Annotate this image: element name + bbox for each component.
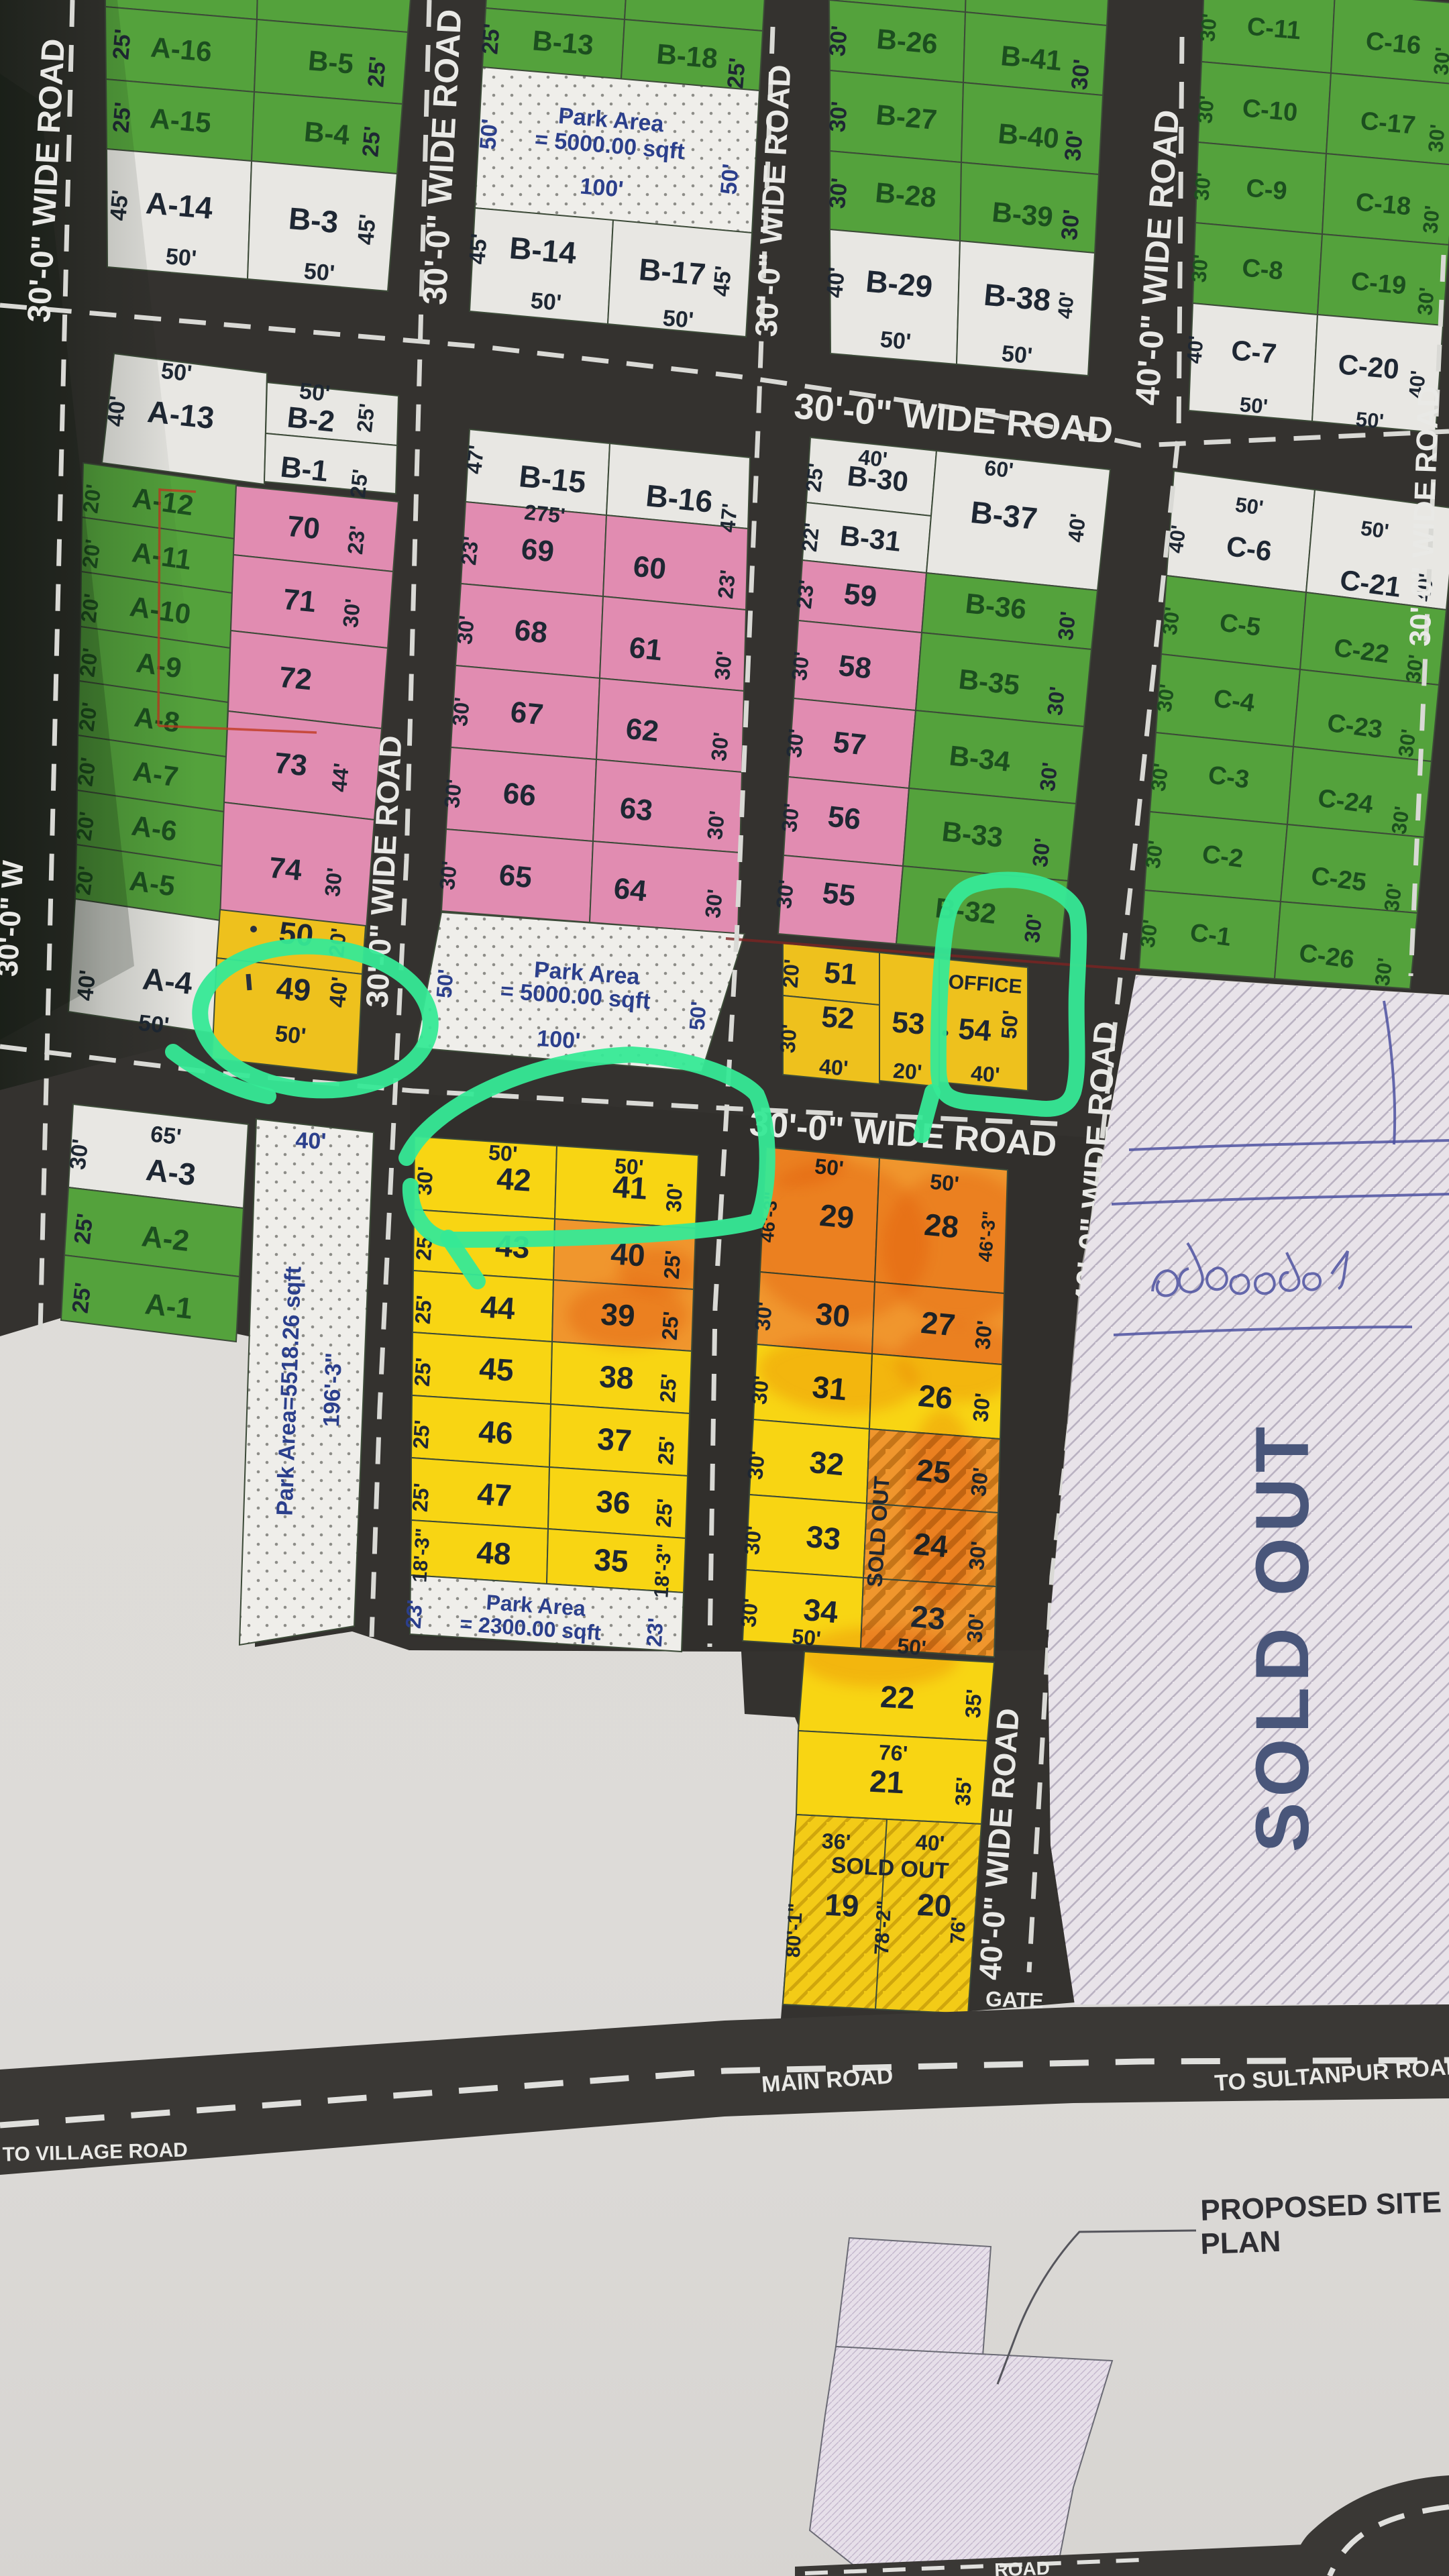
svg-text:70: 70 [286,510,322,546]
svg-text:25': 25' [352,402,379,433]
svg-text:50': 50' [879,327,912,355]
svg-text:B-37: B-37 [969,494,1039,536]
svg-text:B-38: B-38 [982,277,1052,318]
svg-text:72: 72 [278,661,314,697]
svg-text:30': 30' [1035,761,1062,792]
svg-text:275': 275' [523,500,566,528]
svg-text:30': 30' [435,860,462,892]
svg-text:ROAD: ROAD [994,2558,1050,2576]
svg-text:55: 55 [821,877,857,913]
svg-text:25': 25' [477,23,505,56]
svg-text:C-5: C-5 [1218,608,1262,642]
svg-text:19: 19 [824,1887,860,1924]
svg-text:36': 36' [821,1829,851,1854]
svg-text:51: 51 [823,956,858,991]
svg-text:30': 30' [775,1023,802,1054]
svg-text:23': 23' [792,578,818,610]
svg-text:B-4: B-4 [303,115,352,151]
svg-text:20': 20' [778,958,804,989]
svg-text:30': 30' [320,867,347,898]
svg-text:35': 35' [951,1776,976,1807]
svg-text:B-14: B-14 [508,230,578,270]
svg-text:30': 30' [65,1138,94,1171]
svg-text:25': 25' [801,462,828,493]
svg-text:B-18: B-18 [655,38,719,74]
svg-text:30': 30' [1387,805,1413,836]
svg-text:30': 30' [1187,254,1213,284]
svg-text:C-18: C-18 [1354,189,1412,221]
svg-text:74: 74 [268,851,304,888]
svg-text:47': 47' [715,502,742,534]
svg-text:47': 47' [462,444,488,476]
svg-text:C-17: C-17 [1359,107,1417,140]
svg-text:50': 50' [1355,407,1385,433]
svg-text:B-33: B-33 [941,815,1005,853]
svg-text:30': 30' [1057,208,1085,241]
svg-text:B-41: B-41 [1000,40,1063,76]
svg-text:30': 30' [1060,129,1088,162]
svg-text:B-17: B-17 [637,252,707,292]
svg-text:30': 30' [750,1301,777,1332]
svg-text:40': 40' [822,266,850,299]
svg-text:30': 30' [739,1525,766,1556]
svg-text:61: 61 [628,631,664,667]
svg-text:50': 50' [475,118,503,151]
svg-text:38: 38 [598,1358,635,1395]
svg-text:40': 40' [1063,512,1090,543]
svg-text:B-13: B-13 [531,24,595,60]
svg-text:25': 25' [409,1419,435,1450]
svg-text:SOLD OUT: SOLD OUT [1240,1421,1324,1853]
svg-text:42: 42 [496,1161,532,1197]
svg-text:44: 44 [480,1289,517,1326]
svg-text:57: 57 [832,726,868,762]
svg-text:37: 37 [596,1421,633,1458]
svg-text:50': 50' [303,258,335,286]
svg-text:100': 100' [536,1026,581,1054]
svg-text:30': 30' [962,1613,989,1644]
svg-text:80'-1": 80'-1" [782,1902,807,1958]
svg-text:40': 40' [295,1128,327,1155]
svg-text:B-5: B-5 [307,44,355,79]
svg-text:40': 40' [1054,290,1079,319]
svg-text:25': 25' [411,1295,437,1325]
svg-text:C-8: C-8 [1241,254,1285,285]
svg-text:B-16: B-16 [644,478,714,519]
svg-text:30': 30' [824,176,853,209]
svg-text:B-39: B-39 [991,196,1055,233]
svg-text:33: 33 [805,1519,843,1557]
svg-text:64: 64 [612,872,649,908]
svg-text:48: 48 [476,1534,512,1571]
svg-text:73: 73 [273,747,309,783]
svg-text:47: 47 [476,1476,513,1513]
svg-text:50': 50' [661,305,694,333]
svg-text:68: 68 [513,614,549,650]
svg-text:C-20: C-20 [1337,348,1401,385]
svg-text:C-7: C-7 [1230,334,1279,370]
svg-text:71: 71 [282,583,318,619]
svg-text:50': 50' [716,163,744,196]
svg-text:30': 30' [439,778,466,810]
svg-text:25': 25' [70,1212,99,1246]
svg-text:PLAN: PLAN [1200,2225,1281,2261]
svg-text:B-34: B-34 [948,739,1012,777]
svg-text:41: 41 [612,1169,648,1205]
svg-text:23': 23' [642,1617,668,1648]
svg-text:C-1: C-1 [1188,918,1232,952]
svg-text:25': 25' [410,1357,436,1387]
svg-text:30': 30' [1379,882,1406,913]
svg-text:25': 25' [653,1436,680,1466]
svg-text:52: 52 [820,1000,855,1035]
svg-text:65: 65 [498,859,534,895]
svg-text:25': 25' [655,1373,682,1403]
svg-text:30': 30' [1193,95,1219,125]
svg-text:50': 50' [164,244,197,272]
svg-text:34: 34 [802,1592,840,1630]
svg-text:C-16: C-16 [1364,28,1422,60]
svg-text:66: 66 [502,777,538,813]
svg-text:A-2: A-2 [140,1220,191,1258]
svg-text:C-2: C-2 [1200,840,1244,873]
svg-text:30': 30' [1028,837,1055,868]
svg-text:30': 30' [1140,839,1167,870]
svg-text:25': 25' [363,56,391,89]
svg-text:B-1: B-1 [279,451,330,488]
svg-text:50': 50' [1359,516,1390,543]
svg-text:36: 36 [595,1483,631,1520]
svg-text:B-27: B-27 [875,99,938,136]
svg-text:21: 21 [869,1764,905,1801]
svg-text:35: 35 [593,1542,629,1578]
svg-text:59: 59 [843,578,879,614]
svg-text:49: 49 [275,970,313,1008]
svg-text:56: 56 [826,800,863,837]
svg-text:40': 40' [325,975,354,1009]
svg-text:20': 20' [892,1059,923,1085]
svg-text:50': 50' [1234,492,1265,519]
svg-text:B-2: B-2 [286,401,337,439]
svg-text:30': 30' [1157,606,1184,637]
svg-text:30': 30' [452,614,479,646]
svg-text:65': 65' [149,1122,182,1150]
svg-text:23': 23' [401,1599,427,1629]
svg-text:50': 50' [274,1021,307,1050]
svg-text:22': 22' [797,521,824,553]
svg-text:32: 32 [808,1444,846,1483]
svg-text:23': 23' [713,569,740,600]
svg-text:25': 25' [722,57,751,90]
svg-text:44': 44' [327,762,354,794]
svg-text:50': 50' [1000,341,1033,369]
svg-text:76': 76' [947,1916,970,1944]
svg-text:B-40: B-40 [997,117,1061,154]
svg-text:30': 30' [706,731,733,763]
svg-text:60: 60 [632,550,668,586]
svg-text:76': 76' [878,1740,908,1766]
svg-text:B-35: B-35 [957,663,1022,700]
svg-text:B-28: B-28 [874,176,938,213]
svg-text:40': 40' [818,1055,849,1081]
svg-text:50': 50' [529,288,562,316]
svg-text:40': 40' [1182,335,1208,365]
svg-text:B-36: B-36 [964,587,1028,625]
svg-text:A-16: A-16 [150,31,213,67]
svg-text:B-31: B-31 [839,519,903,557]
svg-text:30': 30' [736,1597,763,1628]
svg-text:23': 23' [456,535,483,567]
svg-text:196'-3": 196'-3" [319,1352,347,1427]
svg-text:50': 50' [160,358,193,387]
svg-text:B-26: B-26 [875,23,939,60]
svg-text:67: 67 [509,696,545,732]
svg-text:30': 30' [1146,762,1173,793]
svg-text:30': 30' [1189,172,1216,202]
svg-text:30': 30' [1424,123,1449,154]
svg-text:C-9: C-9 [1245,174,1289,205]
svg-text:B-3: B-3 [287,201,339,239]
svg-text:A-3: A-3 [144,1152,198,1192]
svg-text:30': 30' [1370,957,1397,987]
svg-text:C-3: C-3 [1206,761,1250,794]
svg-text:78'-2": 78'-2" [871,1900,896,1955]
svg-text:30': 30' [1053,610,1080,641]
svg-text:30': 30' [824,24,853,57]
svg-text:30': 30' [1393,728,1420,759]
svg-text:25': 25' [358,125,386,158]
svg-text:30': 30' [743,1450,769,1481]
svg-text:100': 100' [579,173,625,202]
svg-text:20: 20 [916,1887,953,1924]
svg-text:30': 30' [787,650,814,682]
svg-text:B-15: B-15 [517,458,587,500]
svg-text:30': 30' [771,878,798,910]
svg-text:30': 30' [1042,685,1069,716]
svg-text:C-10: C-10 [1241,95,1299,127]
svg-text:30': 30' [1429,46,1449,76]
svg-text:53: 53 [891,1006,926,1040]
svg-text:30': 30' [1020,912,1046,944]
svg-text:30': 30' [1152,683,1179,714]
svg-text:54: 54 [957,1012,993,1047]
svg-text:30': 30' [782,727,808,759]
svg-text:25': 25' [345,468,372,499]
svg-text:46: 46 [478,1413,514,1450]
svg-text:35': 35' [961,1688,986,1719]
svg-text:40': 40' [915,1830,945,1856]
svg-text:50': 50' [1239,392,1269,419]
svg-text:A-15: A-15 [149,102,213,138]
svg-text:30': 30' [710,650,737,682]
svg-text:30': 30' [1195,13,1222,43]
svg-text:40': 40' [970,1061,1001,1087]
svg-text:A-14: A-14 [144,185,214,225]
svg-text:50': 50' [685,1000,711,1031]
svg-text:45: 45 [478,1350,515,1387]
svg-text:30': 30' [1418,205,1444,235]
svg-text:62: 62 [625,712,661,749]
svg-text:C-11: C-11 [1246,13,1302,46]
svg-text:45': 45' [708,265,737,298]
svg-text:B-30: B-30 [846,460,910,497]
svg-text:C-6: C-6 [1224,530,1273,568]
svg-text:30': 30' [702,810,729,841]
svg-text:45': 45' [464,233,492,266]
svg-text:C-19: C-19 [1350,268,1407,301]
svg-text:A-1: A-1 [144,1287,195,1326]
svg-text:30': 30' [1413,286,1439,317]
svg-text:50': 50' [432,968,458,999]
svg-text:25': 25' [651,1498,678,1528]
svg-text:18'-3": 18'-3" [650,1543,676,1599]
svg-text:50': 50' [997,1009,1023,1040]
svg-text:58: 58 [837,649,873,686]
svg-text:30': 30' [824,100,853,133]
svg-text:69: 69 [520,533,556,569]
svg-text:C-4: C-4 [1212,684,1256,718]
svg-text:30': 30' [661,1183,688,1213]
svg-text:60': 60' [983,455,1015,482]
svg-text:23': 23' [343,525,370,556]
svg-text:B-29: B-29 [864,264,934,305]
svg-text:30': 30' [1067,58,1095,91]
svg-text:45': 45' [353,213,381,246]
svg-text:18'-3": 18'-3" [409,1527,434,1583]
svg-text:30': 30' [338,598,365,629]
svg-text:30': 30' [1135,918,1162,949]
svg-text:25': 25' [68,1281,97,1315]
svg-text:30': 30' [700,888,727,920]
svg-text:30': 30' [447,696,474,728]
svg-text:63: 63 [619,792,655,828]
svg-text:25': 25' [408,1483,434,1513]
svg-text:30': 30' [777,802,804,833]
